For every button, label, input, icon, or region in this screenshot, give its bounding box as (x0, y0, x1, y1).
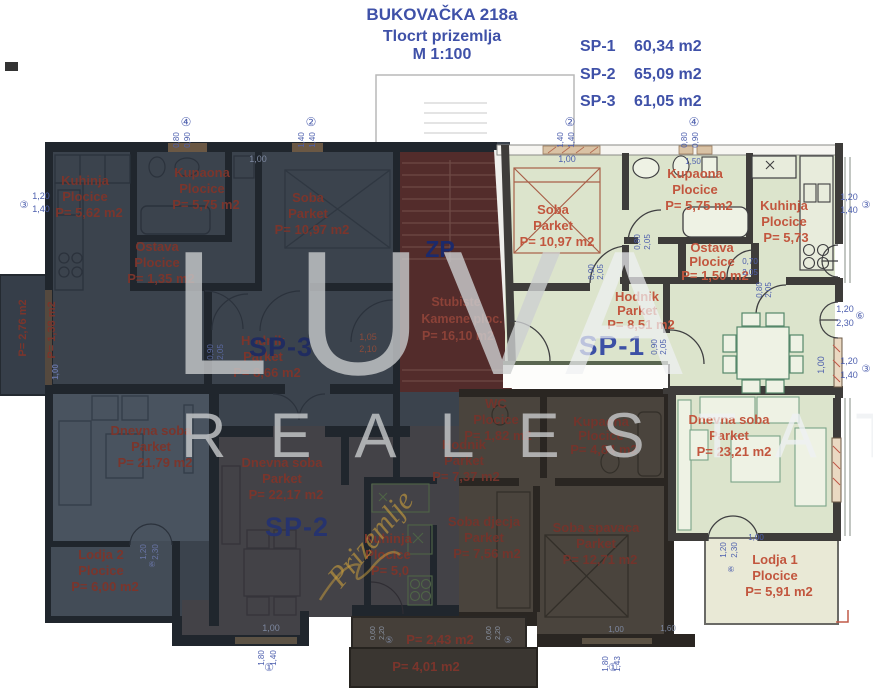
svg-text:Plocice: Plocice (62, 189, 108, 204)
svg-text:Plocice: Plocice (78, 563, 124, 578)
svg-text:P= 2,76 m2: P= 2,76 m2 (17, 299, 29, 356)
svg-text:L: L (171, 214, 269, 412)
svg-text:1,40: 1,40 (840, 370, 858, 380)
svg-text:1,40: 1,40 (567, 132, 576, 148)
svg-text:1,40: 1,40 (308, 132, 317, 148)
svg-text:Ostava: Ostava (690, 240, 734, 255)
svg-text:2,10: 2,10 (359, 344, 377, 354)
svg-text:Soba djecja: Soba djecja (448, 514, 521, 529)
svg-text:0,70: 0,70 (742, 257, 758, 266)
svg-text:SP-3: SP-3 (580, 93, 616, 110)
svg-text:0,80: 0,80 (680, 132, 689, 148)
svg-text:0,90: 0,90 (206, 344, 215, 360)
svg-text:1,20: 1,20 (32, 191, 50, 201)
svg-text:P= 4,01 m2: P= 4,01 m2 (392, 659, 460, 674)
svg-text:P= 22,17 m2: P= 22,17 m2 (249, 487, 324, 502)
svg-text:1,20: 1,20 (836, 304, 854, 314)
svg-text:P= 1,38 m2: P= 1,38 m2 (46, 301, 58, 358)
svg-text:TATE: TATE (698, 401, 873, 471)
svg-text:1,40: 1,40 (269, 650, 278, 666)
svg-text:Dnevna soba: Dnevna soba (111, 423, 193, 438)
svg-text:1,50: 1,50 (685, 157, 701, 166)
svg-text:2,30: 2,30 (151, 544, 160, 560)
svg-text:Soba spavaca: Soba spavaca (553, 520, 640, 535)
svg-text:1,00: 1,00 (558, 154, 576, 164)
svg-text:2,05: 2,05 (764, 282, 773, 298)
svg-text:2,05: 2,05 (596, 264, 605, 280)
svg-text:1,20: 1,20 (840, 356, 858, 366)
svg-text:P= 6,00 m2: P= 6,00 m2 (71, 579, 139, 594)
svg-text:⑥: ⑥ (148, 560, 155, 569)
svg-text:Plocice: Plocice (752, 568, 798, 583)
svg-text:Plocice: Plocice (761, 214, 807, 229)
svg-text:Kuhinja: Kuhinja (61, 173, 109, 188)
svg-text:P= 5,75 m2: P= 5,75 m2 (665, 198, 733, 213)
svg-text:1,40: 1,40 (840, 205, 858, 215)
svg-text:1,00: 1,00 (608, 625, 624, 634)
svg-text:0,90: 0,90 (691, 132, 700, 148)
svg-text:2,05: 2,05 (216, 344, 225, 360)
svg-text:Plocice: Plocice (672, 182, 718, 197)
svg-text:④: ④ (181, 115, 192, 129)
svg-text:1,00: 1,00 (249, 154, 267, 164)
svg-text:1,20: 1,20 (840, 192, 858, 202)
svg-text:2,30: 2,30 (836, 318, 854, 328)
svg-text:Kuhinja: Kuhinja (760, 198, 808, 213)
svg-text:60,34 m2: 60,34 m2 (634, 38, 702, 55)
svg-text:④: ④ (689, 115, 700, 129)
svg-text:②: ② (565, 115, 576, 129)
svg-text:1,00: 1,00 (816, 356, 826, 374)
svg-text:Tlocrt prizemlja: Tlocrt prizemlja (383, 28, 501, 45)
svg-text:P= 7,56 m2: P= 7,56 m2 (453, 546, 521, 561)
svg-text:③: ③ (20, 200, 29, 211)
svg-text:0,60: 0,60 (486, 626, 493, 640)
svg-text:A: A (565, 214, 683, 412)
svg-text:1,40: 1,40 (297, 132, 306, 148)
svg-text:Lodja 2: Lodja 2 (78, 547, 124, 562)
svg-text:SP-2: SP-2 (265, 512, 329, 542)
svg-text:P= 12,71 m2: P= 12,71 m2 (563, 552, 638, 567)
svg-text:U: U (295, 214, 423, 412)
svg-text:0,80: 0,80 (633, 234, 642, 250)
svg-text:0,90: 0,90 (183, 132, 192, 148)
svg-text:1,40: 1,40 (556, 132, 565, 148)
svg-text:1,00: 1,00 (51, 364, 60, 380)
svg-text:Parket: Parket (131, 439, 171, 454)
svg-text:⑤: ⑤ (504, 635, 512, 645)
svg-text:65,09 m2: 65,09 m2 (634, 66, 702, 83)
svg-text:Kupaona: Kupaona (667, 166, 723, 181)
svg-text:P= 5,75 m2: P= 5,75 m2 (172, 197, 240, 212)
svg-text:②: ② (306, 115, 317, 129)
svg-text:1,80: 1,80 (257, 650, 266, 666)
svg-text:Kupaona: Kupaona (174, 165, 230, 180)
svg-text:Soba: Soba (292, 190, 325, 205)
svg-text:SP-1: SP-1 (580, 38, 616, 55)
svg-text:0,90: 0,90 (587, 264, 596, 280)
svg-text:P= 5,73: P= 5,73 (763, 230, 808, 245)
svg-text:P= 2,43 m2: P= 2,43 m2 (406, 632, 474, 647)
svg-text:1,40: 1,40 (32, 204, 50, 214)
svg-text:0,60: 0,60 (370, 626, 377, 640)
svg-text:Parket: Parket (262, 471, 302, 486)
svg-text:1,00: 1,00 (262, 623, 280, 633)
svg-text:0,90: 0,90 (650, 339, 659, 355)
svg-text:P= 5,0: P= 5,0 (371, 563, 409, 578)
svg-text:③: ③ (862, 200, 871, 211)
svg-text:2,05: 2,05 (643, 234, 652, 250)
svg-text:Lodja 1: Lodja 1 (752, 552, 798, 567)
svg-text:Plocice: Plocice (689, 254, 735, 269)
svg-text:2,30: 2,30 (730, 542, 739, 558)
svg-text:2,20: 2,20 (495, 626, 502, 640)
svg-text:2,20: 2,20 (379, 626, 386, 640)
svg-text:P= 5,91 m2: P= 5,91 m2 (745, 584, 813, 599)
svg-text:0,80: 0,80 (755, 282, 764, 298)
svg-text:M 1:100: M 1:100 (413, 46, 472, 63)
svg-text:REALES: REALES (181, 401, 688, 471)
svg-text:1,43: 1,43 (613, 656, 622, 672)
svg-text:1,00: 1,00 (748, 533, 764, 542)
svg-text:⑤: ⑤ (385, 635, 393, 645)
svg-text:1,60: 1,60 (660, 624, 676, 633)
svg-text:1,05: 1,05 (359, 332, 377, 342)
svg-text:P= 1,50 m2: P= 1,50 m2 (681, 268, 749, 283)
svg-text:0,80: 0,80 (172, 132, 181, 148)
svg-text:P= 7,37 m2: P= 7,37 m2 (432, 469, 500, 484)
svg-text:1,20: 1,20 (719, 542, 728, 558)
svg-text:1,80: 1,80 (601, 656, 610, 672)
svg-text:P= 5,62 m2: P= 5,62 m2 (55, 205, 123, 220)
svg-text:③: ③ (862, 364, 871, 375)
svg-text:1,20: 1,20 (139, 544, 148, 560)
svg-text:Parket: Parket (464, 530, 504, 545)
svg-text:61,05 m2: 61,05 m2 (634, 93, 702, 110)
svg-text:⑥: ⑥ (856, 311, 865, 322)
svg-text:BUKOVAČKA 218a: BUKOVAČKA 218a (366, 5, 518, 24)
svg-text:SP-2: SP-2 (580, 66, 616, 83)
svg-text:2,05: 2,05 (659, 339, 668, 355)
svg-text:V: V (443, 214, 561, 412)
svg-text:2,05: 2,05 (742, 268, 758, 277)
svg-text:⑥: ⑥ (727, 565, 734, 574)
svg-text:Parket: Parket (576, 536, 616, 551)
svg-text:Plocice: Plocice (179, 181, 225, 196)
